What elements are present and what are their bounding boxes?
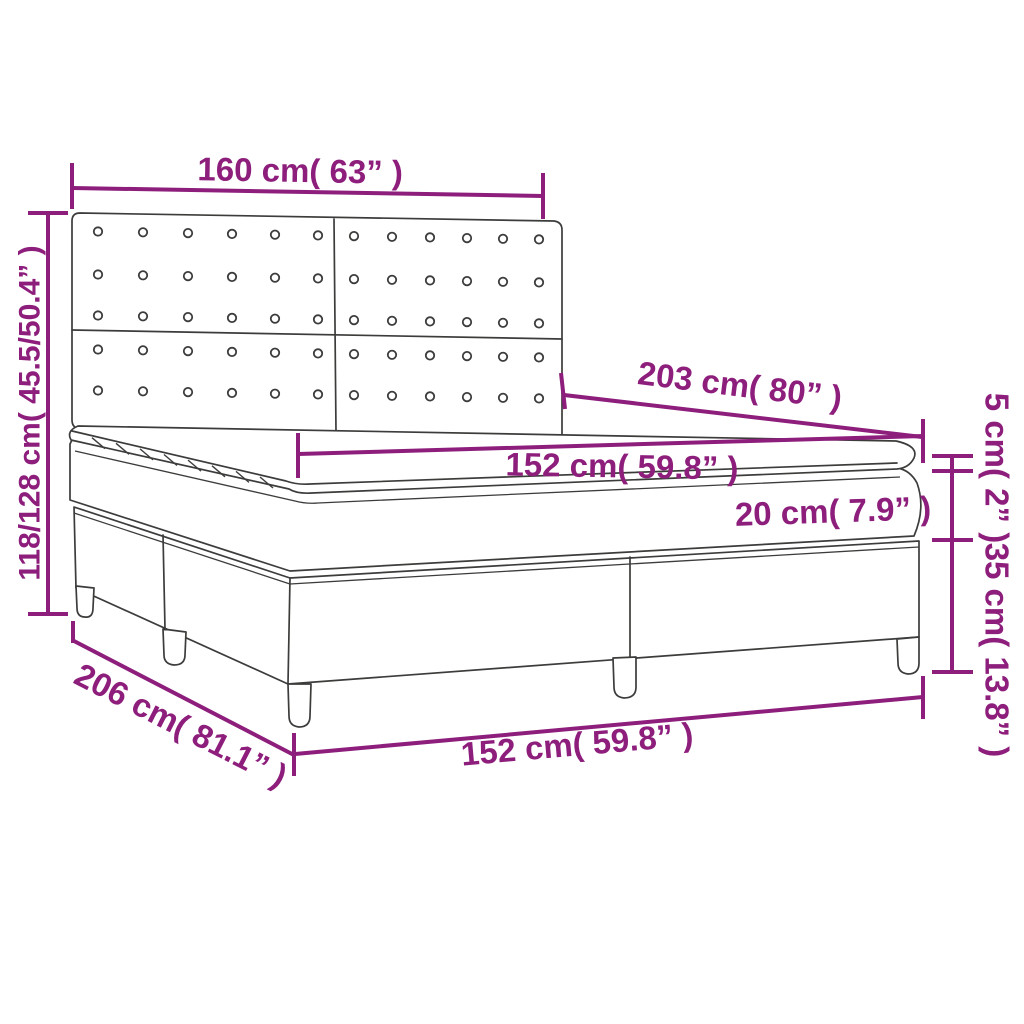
tuft-button [139,271,147,279]
dim-headboard-width-line [72,188,543,196]
tuft-button [184,388,192,396]
tuft-button [228,230,236,238]
tuft-button [388,276,396,284]
leg [163,629,186,665]
tuft-button [463,318,471,326]
tuft-button [535,353,543,361]
tuft-button [463,277,471,285]
tuft-button [271,390,279,398]
leg [897,637,919,674]
tuft-button [388,392,396,400]
tuft-button [139,387,147,395]
tuft-button [94,386,102,394]
tuft-button [314,315,322,323]
tuft-button [94,345,102,353]
tuft-button [426,317,434,325]
tuft-button [499,278,507,286]
tuft-button [314,390,322,398]
tuft-button [499,353,507,361]
tuft-button [94,227,102,235]
leg [288,684,311,727]
tuft-button [94,311,102,319]
tuft-button [535,235,543,243]
tuft-button [499,319,507,327]
tuft-button [184,313,192,321]
tuft-button [426,233,434,241]
tuft-button [139,346,147,354]
label-topper-thickness: 5 cm( 2” ) [979,393,1016,543]
tuft-button [271,274,279,282]
tuft-button [271,231,279,239]
tuft-button [228,273,236,281]
tuft-button [184,347,192,355]
tuft-button [426,276,434,284]
leg [76,586,94,617]
headboard [72,213,562,437]
tuft-button [184,272,192,280]
tuft-button [228,314,236,322]
tuft-button [535,394,543,402]
tuft-button [426,392,434,400]
tuft-button [499,235,507,243]
label-total-depth: 206 cm( 81.1” ) [69,656,293,795]
tuft-button [350,232,358,240]
bed-dimension-diagram: 160 cm( 63” ) 118/128 cm( 45.5/50.4” ) 2… [0,0,1024,1024]
label-mattress-thickness: 20 cm( 7.9” ) [734,489,931,533]
tuft-button [499,394,507,402]
tuft-button [228,389,236,397]
tuft-button [463,234,471,242]
tuft-button [314,231,322,239]
label-mattress-width: 152 cm( 59.8” ) [505,445,739,486]
label-headboard-width: 160 cm( 63” ) [197,150,403,191]
tuft-button [271,315,279,323]
leg [613,657,636,698]
label-base-leg-height: 35 cm( 13.8” ) [979,543,1016,758]
tuft-button [139,228,147,236]
tuft-button [314,349,322,357]
tuft-button [139,312,147,320]
tuft-button [535,278,543,286]
label-base-width: 152 cm( 59.8” ) [459,715,694,772]
label-total-height: 118/128 cm( 45.5/50.4” ) [14,245,47,580]
tuft-button [388,351,396,359]
tuft-button [350,350,358,358]
tuft-button [350,275,358,283]
tuft-button [184,229,192,237]
tuft-button [463,352,471,360]
tuft-button [350,316,358,324]
diagram-canvas: 160 cm( 63” ) 118/128 cm( 45.5/50.4” ) 2… [0,0,1024,1024]
tuft-button [463,393,471,401]
tuft-button [314,274,322,282]
tuft-button [350,391,358,399]
tuft-button [388,233,396,241]
tuft-button [228,348,236,356]
tuft-button [271,349,279,357]
tuft-button [426,351,434,359]
tuft-button [94,270,102,278]
tuft-button [535,319,543,327]
headboard-panel [72,213,562,437]
tuft-button [388,317,396,325]
